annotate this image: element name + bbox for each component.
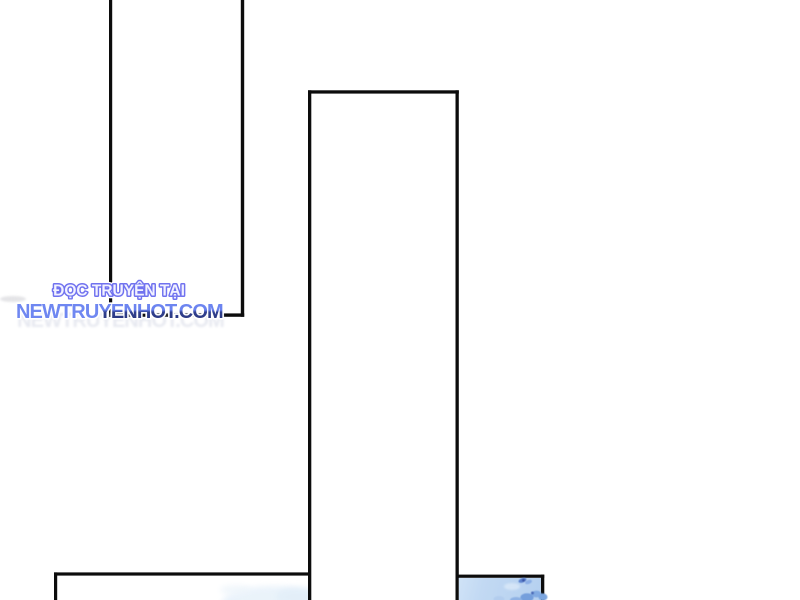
svg-text:YENHOT.COM: YENHOT.COM xyxy=(98,301,223,323)
svg-text:ĐỌC TRUYỆN TẠI: ĐỌC TRUYỆN TẠI xyxy=(53,282,185,300)
svg-text:NEWTRU: NEWTRU xyxy=(16,301,99,323)
